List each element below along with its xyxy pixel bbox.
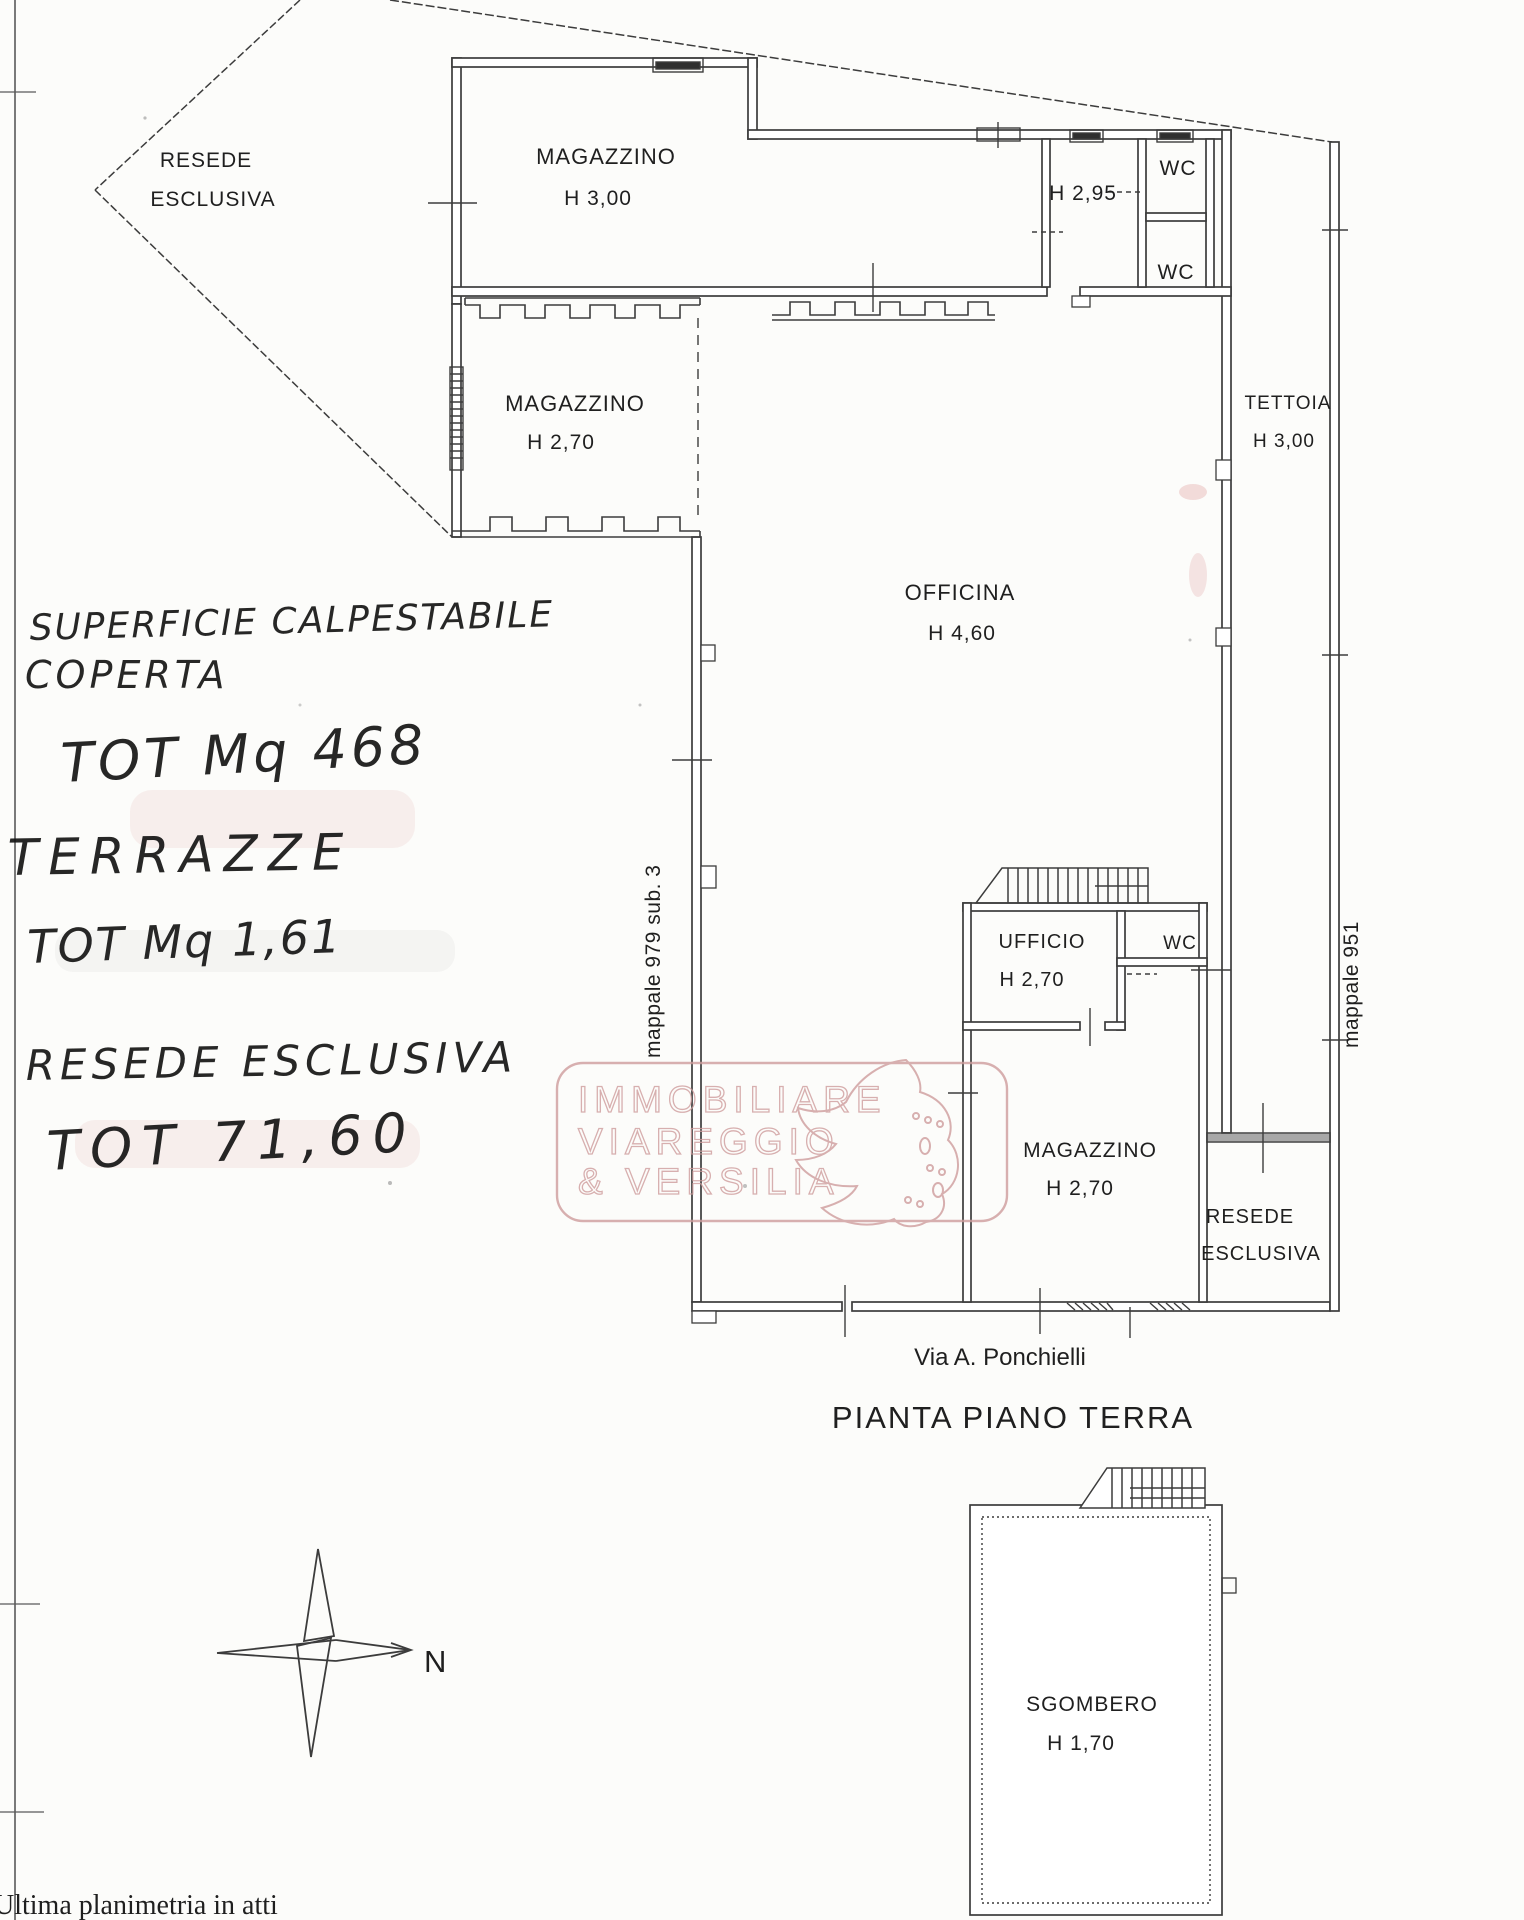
parcel-label-left: mappale 979 sub. 3 xyxy=(642,865,665,1058)
sgombero-annex xyxy=(970,1468,1236,1915)
room-label-tettoia: TETTOIA xyxy=(1245,393,1332,414)
room-label-sgombero: SGOMBERO xyxy=(1026,1693,1158,1716)
footer-note: Ultima planimetria in atti xyxy=(0,1890,278,1920)
room-label-magazzino-top: MAGAZZINO xyxy=(536,144,676,169)
room-label-ufficio: UFFICIO xyxy=(999,931,1086,953)
room-label-officina: OFFICINA xyxy=(905,580,1016,605)
room-label-wc-bottom: WC xyxy=(1158,261,1195,284)
stairs-icon xyxy=(976,868,1148,903)
compass-north-label: N xyxy=(424,1644,446,1679)
room-height-sgombero: H 1,70 xyxy=(1047,1732,1115,1755)
north-compass-icon xyxy=(217,1549,411,1757)
scanned-floor-plan-page: IMMOBILIARE VIAREGGIO & VERSILIA RESEDE … xyxy=(0,0,1524,1920)
handwritten-line7: TOT 71,60 xyxy=(45,1101,418,1183)
room-height-magazzino-top: H 3,00 xyxy=(564,187,632,210)
room-height-magazzino-south: H 2,70 xyxy=(1046,1177,1114,1200)
room-label-wc-ufficio: WC xyxy=(1163,933,1197,954)
room-height-ufficio: H 2,70 xyxy=(1000,969,1065,991)
handwritten-line5: TOT Mq 1,61 xyxy=(26,909,343,974)
watermark: IMMOBILIARE VIAREGGIO & VERSILIA xyxy=(557,1060,1007,1226)
room-height-h295: H 2,95 xyxy=(1049,182,1117,205)
room-height-magazzino-west: H 2,70 xyxy=(527,431,595,454)
handwritten-line2: COPERTA xyxy=(25,653,229,697)
handwritten-line4: TERRAZZE xyxy=(7,823,354,887)
handwritten-line6: RESEDE ESCLUSIVA xyxy=(25,1032,517,1090)
room-label-resede-nw-2: ESCLUSIVA xyxy=(150,188,275,211)
handwritten-notes: SUPERFICIE CALPESTABILE COPERTA TOT Mq 4… xyxy=(7,594,554,1183)
room-label-resede-nw-1: RESEDE xyxy=(160,149,252,172)
room-height-officina: H 4,60 xyxy=(928,622,996,645)
handwritten-line1: SUPERFICIE CALPESTABILE xyxy=(29,594,554,649)
handwritten-line3: TOT Mq 468 xyxy=(59,713,429,795)
watermark-line1: IMMOBILIARE xyxy=(578,1079,887,1120)
room-label-magazzino-south: MAGAZZINO xyxy=(1023,1139,1157,1162)
room-label-wc-top: WC xyxy=(1160,157,1197,180)
floor-plan-drawing: IMMOBILIARE VIAREGGIO & VERSILIA RESEDE … xyxy=(0,0,1524,1920)
watermark-line2: VIAREGGIO xyxy=(578,1121,840,1162)
room-label-magazzino-west: MAGAZZINO xyxy=(505,391,645,416)
page-title: PIANTA PIANO TERRA xyxy=(832,1400,1194,1435)
street-label: Via A. Ponchielli xyxy=(914,1344,1086,1371)
parcel-label-right: mappale 951 xyxy=(1340,921,1363,1048)
room-label-resede-se-1: RESEDE xyxy=(1206,1206,1294,1228)
room-height-tettoia: H 3,00 xyxy=(1253,431,1315,452)
crenellated-walls xyxy=(452,298,995,537)
room-label-resede-se-2: ESCLUSIVA xyxy=(1201,1243,1321,1265)
sgombero-stairs-icon xyxy=(1080,1468,1205,1508)
